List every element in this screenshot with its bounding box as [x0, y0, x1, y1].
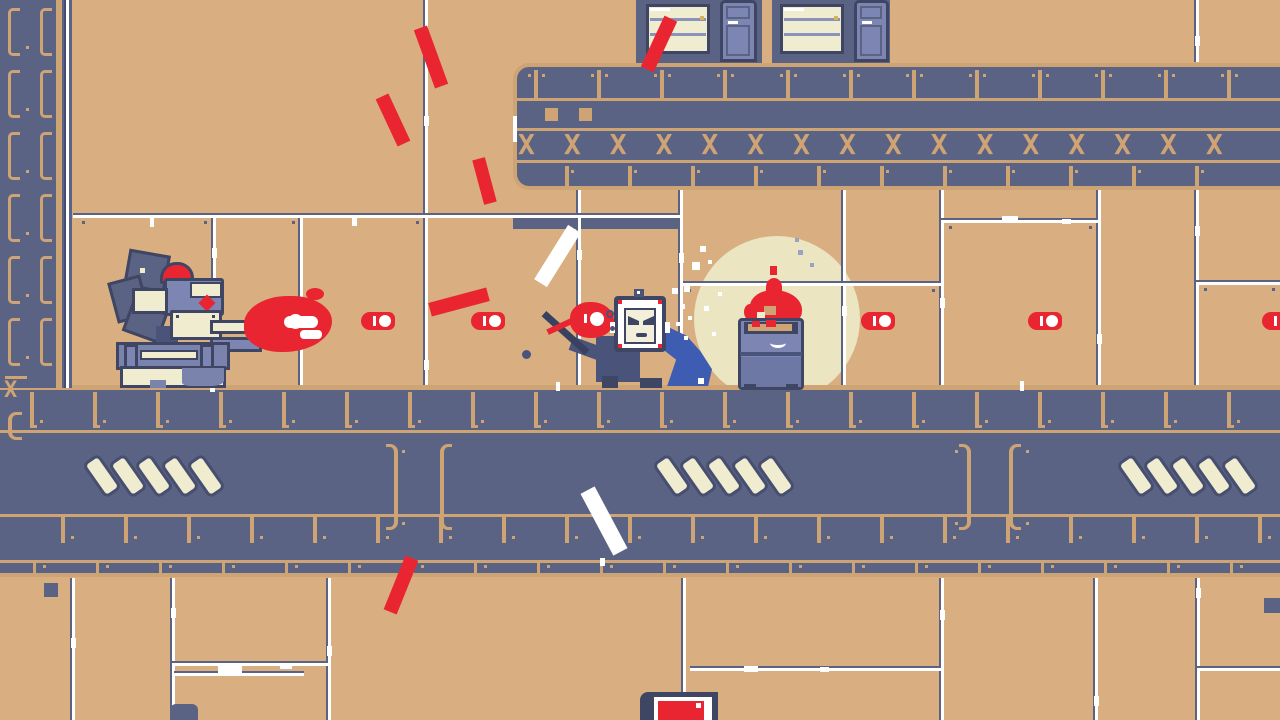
deck-strut — [93, 392, 97, 428]
hero-head-corner — [658, 300, 662, 304]
deck-strut — [691, 517, 695, 543]
turret-base-stain — [182, 368, 224, 386]
rivet — [843, 74, 846, 77]
hero-foot — [640, 378, 662, 388]
rivet — [697, 170, 700, 173]
rivet — [764, 536, 767, 539]
bullet-tick — [1040, 316, 1043, 326]
muzzle-flash-streak — [300, 330, 322, 339]
debris-red — [376, 93, 411, 146]
sparkle — [718, 292, 722, 296]
rivet — [176, 315, 179, 318]
deck-strut — [345, 392, 349, 428]
panel-dot — [932, 289, 935, 292]
girder-strut — [691, 166, 695, 186]
campfire-barrel-band — [740, 352, 802, 356]
rivet — [1114, 565, 1117, 568]
rivet — [701, 536, 704, 539]
campfire-barrel-foot — [786, 384, 798, 390]
rivet — [827, 536, 830, 539]
girder-plate — [545, 108, 558, 121]
rivet — [731, 74, 734, 77]
girder-strut — [786, 70, 790, 98]
rivet — [40, 420, 43, 423]
rivet — [232, 565, 235, 568]
paint-drip — [150, 218, 154, 227]
turret-cog-dot — [140, 268, 145, 273]
wall-vent — [44, 583, 58, 597]
panel-tick — [424, 116, 429, 126]
deck-strut — [33, 563, 36, 573]
pillar-bracket — [40, 318, 52, 366]
panel-tick — [1097, 334, 1102, 344]
deck-strut — [187, 517, 191, 543]
deck-strut — [534, 392, 538, 428]
campfire-coal-ember — [766, 320, 776, 327]
rivet — [26, 232, 29, 235]
deck-strut — [849, 392, 853, 428]
deck-joint — [1009, 444, 1021, 530]
girder-strut — [943, 166, 947, 186]
rivet — [780, 74, 783, 77]
rivet — [736, 565, 739, 568]
rivet — [638, 536, 641, 539]
panel-tick — [1094, 696, 1099, 706]
rivet — [1174, 420, 1177, 423]
rivet — [922, 420, 925, 423]
girder-strut — [1132, 166, 1136, 186]
rivet — [1231, 425, 1234, 428]
deck-strut — [471, 392, 475, 428]
window-shutter — [780, 4, 844, 54]
rivet — [43, 565, 46, 568]
hero-foot — [602, 376, 618, 388]
pillar-x-overline — [5, 376, 27, 379]
deck-strut — [754, 517, 758, 543]
rivet — [421, 565, 424, 568]
paint-drip — [352, 218, 357, 226]
bullet-tick — [483, 316, 486, 326]
deck-strut — [439, 517, 443, 543]
sparkle — [698, 378, 704, 384]
hero-head-corner — [618, 344, 622, 348]
deck-strut — [1041, 563, 1044, 573]
rivet — [323, 536, 326, 539]
rivet — [1046, 74, 1049, 77]
rivet — [906, 74, 909, 77]
rivet — [610, 565, 613, 568]
rivet — [1075, 170, 1078, 173]
bullet — [1262, 312, 1280, 330]
paint-drip — [1062, 219, 1071, 224]
rivet — [916, 425, 919, 428]
panel-tick — [842, 306, 847, 316]
deck-strut — [159, 563, 162, 573]
campfire-spark — [770, 266, 777, 275]
wall-notch — [1264, 598, 1280, 613]
ash-speck — [798, 250, 803, 255]
deck-strut — [124, 517, 128, 543]
rivet — [664, 425, 667, 428]
girder-strut — [597, 70, 601, 98]
rivet — [484, 565, 487, 568]
deck-strut — [1227, 392, 1231, 428]
rivet — [988, 565, 991, 568]
rivet — [402, 450, 405, 453]
deck-strut — [1195, 517, 1199, 543]
bullet-core — [489, 315, 501, 327]
paint-drip — [1020, 381, 1024, 391]
rivet — [673, 565, 676, 568]
rivet — [481, 420, 484, 423]
deck-strut — [786, 392, 790, 428]
rivet — [1205, 536, 1208, 539]
door-panel — [860, 25, 882, 56]
rivet — [857, 74, 860, 77]
hero-side-bolt — [665, 322, 670, 333]
rivet — [106, 565, 109, 568]
girder-strut — [628, 166, 632, 186]
rivet — [528, 74, 531, 77]
deck-strut — [1167, 563, 1170, 573]
sparkle — [676, 322, 680, 326]
rivet — [670, 420, 673, 423]
girder-strut — [660, 70, 664, 98]
girder-plate — [579, 108, 592, 121]
paint-drip — [218, 666, 242, 673]
girder-strut — [880, 166, 884, 186]
rivet — [853, 425, 856, 428]
deck-strut — [282, 392, 286, 428]
rivet — [969, 74, 972, 77]
girder-strut — [1227, 70, 1231, 98]
panel-dot — [204, 221, 207, 224]
panel-tick — [1195, 226, 1200, 236]
rivet — [591, 74, 594, 77]
rivet — [668, 74, 671, 77]
deck-strut — [1258, 517, 1262, 543]
panel-line — [172, 663, 328, 666]
rivet — [1235, 74, 1238, 77]
pillar-bracket — [8, 318, 20, 366]
panel-dot — [1089, 226, 1092, 229]
sparkle — [708, 260, 712, 264]
rivet — [1177, 565, 1180, 568]
pillar-edge-trim — [56, 0, 62, 388]
rivet — [979, 425, 982, 428]
rivet — [654, 74, 657, 77]
rivet — [1268, 536, 1271, 539]
pillar-x-mark: X — [4, 378, 32, 404]
rivet — [160, 425, 163, 428]
deck-strut — [978, 563, 981, 573]
rivet — [295, 565, 298, 568]
girder-strut — [1164, 70, 1168, 98]
rivet — [920, 74, 923, 77]
window-dot — [700, 16, 704, 20]
rivet — [542, 74, 545, 77]
rivet — [862, 565, 865, 568]
girder-rail — [517, 160, 1280, 163]
door-panel — [860, 6, 882, 19]
bullet-tick — [1274, 316, 1277, 326]
deck-strut — [502, 517, 506, 543]
paint-drip — [1002, 216, 1018, 222]
rivet — [1168, 425, 1171, 428]
deck-strut — [537, 563, 540, 573]
rivet — [1237, 420, 1240, 423]
deck-strut — [880, 517, 884, 543]
panel-line — [1098, 190, 1101, 385]
ledge-shadow — [513, 217, 683, 229]
deck-strut — [285, 563, 288, 573]
girder-rail — [517, 98, 1280, 101]
rivet — [1095, 74, 1098, 77]
deck-strut — [61, 517, 65, 543]
panel-line — [1197, 578, 1200, 720]
rivet — [760, 170, 763, 173]
sparkle — [704, 306, 709, 311]
rivet — [512, 536, 515, 539]
girder-strut — [754, 166, 758, 186]
rivet — [97, 425, 100, 428]
debris-white — [534, 225, 581, 287]
pillar-bracket — [8, 70, 20, 118]
paint-drip — [280, 664, 292, 669]
rivet — [575, 536, 578, 539]
rivet — [799, 565, 802, 568]
deck-strut — [723, 392, 727, 428]
panel-line — [683, 283, 941, 286]
rivet — [349, 425, 352, 428]
bubble — [606, 310, 614, 318]
deck-strut — [1164, 392, 1168, 428]
door-handle — [728, 21, 738, 24]
girder-strut — [1069, 166, 1073, 186]
pillar-bracket — [8, 8, 20, 56]
rivet — [1158, 74, 1161, 77]
rivet — [1240, 565, 1243, 568]
sparkle — [692, 262, 700, 270]
rivet — [1026, 522, 1029, 525]
door-panel — [726, 25, 750, 56]
paint-drip — [820, 667, 829, 672]
deck-strut — [975, 392, 979, 428]
bullet-tick — [373, 316, 376, 326]
rivet — [1111, 420, 1114, 423]
deck-strut — [628, 517, 632, 543]
paint-drip — [513, 116, 517, 142]
pillar-bracket — [8, 194, 20, 242]
panel-tick — [1195, 36, 1200, 46]
rivet — [197, 536, 200, 539]
girder-x-band: XXXXXXXXXXXXXXXX — [518, 130, 1280, 160]
deck-strut — [726, 563, 729, 573]
deck-strut — [660, 392, 664, 428]
girder-strut — [912, 70, 916, 98]
rivet — [790, 425, 793, 428]
paint-drip — [744, 666, 758, 672]
window-slat-line — [784, 18, 840, 21]
deck-strut — [313, 517, 317, 543]
pillar-bracket — [40, 194, 52, 242]
panel-tick — [679, 253, 684, 263]
door-handle — [862, 21, 872, 24]
game-viewport[interactable]: XXXXXXXXXXXXXXXXX — [0, 0, 1280, 720]
girder-strut — [975, 70, 979, 98]
rivet — [229, 420, 232, 423]
window-shine — [650, 8, 670, 11]
panel-line — [941, 578, 944, 720]
rivet — [212, 315, 215, 318]
rivet — [859, 420, 862, 423]
girder-strut — [849, 70, 853, 98]
rivet — [34, 425, 37, 428]
panel-dot — [292, 221, 295, 224]
girder-strut — [1101, 70, 1105, 98]
pillar-bracket — [40, 8, 52, 56]
panel-line — [683, 578, 686, 694]
deck-strut — [817, 517, 821, 543]
deck-rail — [0, 573, 1280, 577]
panel-line — [941, 220, 1098, 223]
rivet — [953, 536, 956, 539]
rivet — [475, 425, 478, 428]
campfire-barrel-foot — [744, 384, 756, 390]
panel-tick — [940, 610, 945, 620]
rivet — [955, 450, 958, 453]
deck-strut — [1038, 392, 1042, 428]
panel-tick — [327, 646, 332, 656]
rivet — [1201, 170, 1204, 173]
paint-drip — [600, 558, 605, 566]
bullet-core — [879, 315, 891, 327]
rivet — [292, 420, 295, 423]
panel-line — [843, 190, 846, 385]
rivet — [1012, 170, 1015, 173]
sparkle — [680, 304, 685, 309]
rivet — [260, 536, 263, 539]
rivet — [355, 420, 358, 423]
panel-dot — [1272, 288, 1275, 291]
window-shine — [784, 8, 804, 11]
rivet — [1048, 420, 1051, 423]
panel-line — [174, 673, 304, 676]
rivet — [26, 294, 29, 297]
rivet — [955, 522, 958, 525]
deck-strut — [1230, 563, 1233, 573]
rivet — [169, 565, 172, 568]
rivet — [1105, 425, 1108, 428]
rivet — [607, 420, 610, 423]
rivet — [547, 565, 550, 568]
pillar-bracket — [40, 256, 52, 304]
rivet — [925, 565, 928, 568]
rivet — [26, 170, 29, 173]
sparkle — [684, 336, 688, 340]
rivet — [717, 74, 720, 77]
deck-joint — [959, 444, 971, 530]
hero-head-corner — [658, 344, 662, 348]
bubble — [610, 326, 615, 331]
girder-strut — [723, 70, 727, 98]
deck-strut — [376, 517, 380, 543]
ash-speck — [795, 238, 799, 242]
deck-strut — [663, 563, 666, 573]
rivet — [601, 425, 604, 428]
deck-rail — [0, 514, 1280, 517]
rivet — [449, 536, 452, 539]
rivet — [1079, 536, 1082, 539]
pillar-bracket — [8, 256, 20, 304]
panel-line — [1196, 282, 1280, 285]
panel-line — [172, 578, 175, 720]
rivet — [412, 425, 415, 428]
panel-line — [72, 578, 75, 720]
panel-dot — [416, 221, 419, 224]
panel-line — [690, 668, 941, 671]
turret-viewport — [132, 288, 168, 314]
panel-line — [578, 190, 581, 385]
bullet-tick — [873, 316, 876, 326]
window-slat-line — [784, 33, 840, 36]
deck-rail — [0, 560, 1280, 563]
rivet — [733, 420, 736, 423]
sparkle — [688, 316, 692, 320]
panel-tick — [940, 298, 945, 308]
rivet — [1142, 536, 1145, 539]
pillar-bracket — [40, 70, 52, 118]
sparkle — [684, 286, 690, 292]
pillar-corner-bracket — [8, 412, 22, 440]
rivet — [634, 170, 637, 173]
deck-strut — [1069, 517, 1073, 543]
rivet — [386, 536, 389, 539]
rivet — [418, 420, 421, 423]
rivet — [985, 420, 988, 423]
panel-tick — [71, 638, 76, 648]
deck-strut — [348, 563, 351, 573]
paint-drip — [556, 382, 560, 391]
rivet — [103, 420, 106, 423]
rivet — [26, 108, 29, 111]
panel-line — [1197, 668, 1280, 671]
wall-blob — [170, 704, 198, 720]
deck-strut — [597, 392, 601, 428]
sparkle — [672, 288, 678, 294]
deck-strut — [1132, 517, 1136, 543]
panel-dot — [1204, 288, 1207, 291]
deflected-bullet-tick — [584, 314, 587, 323]
rivet — [26, 46, 29, 49]
rivet — [949, 170, 952, 173]
rivet — [890, 536, 893, 539]
bullet-core — [1046, 315, 1058, 327]
campfire-flame-core — [764, 306, 776, 315]
rivet — [71, 536, 74, 539]
panel-tick — [171, 608, 176, 618]
deck-joint — [386, 444, 398, 530]
rivet — [358, 565, 361, 568]
girder-strut — [817, 166, 821, 186]
campfire-barrel-smile — [770, 338, 786, 348]
rivet — [26, 356, 29, 359]
deck-strut — [789, 563, 792, 573]
panel-line — [1196, 0, 1199, 62]
deflected-bullet-core — [590, 312, 604, 326]
rivet — [1032, 74, 1035, 77]
deck-strut — [156, 392, 160, 428]
